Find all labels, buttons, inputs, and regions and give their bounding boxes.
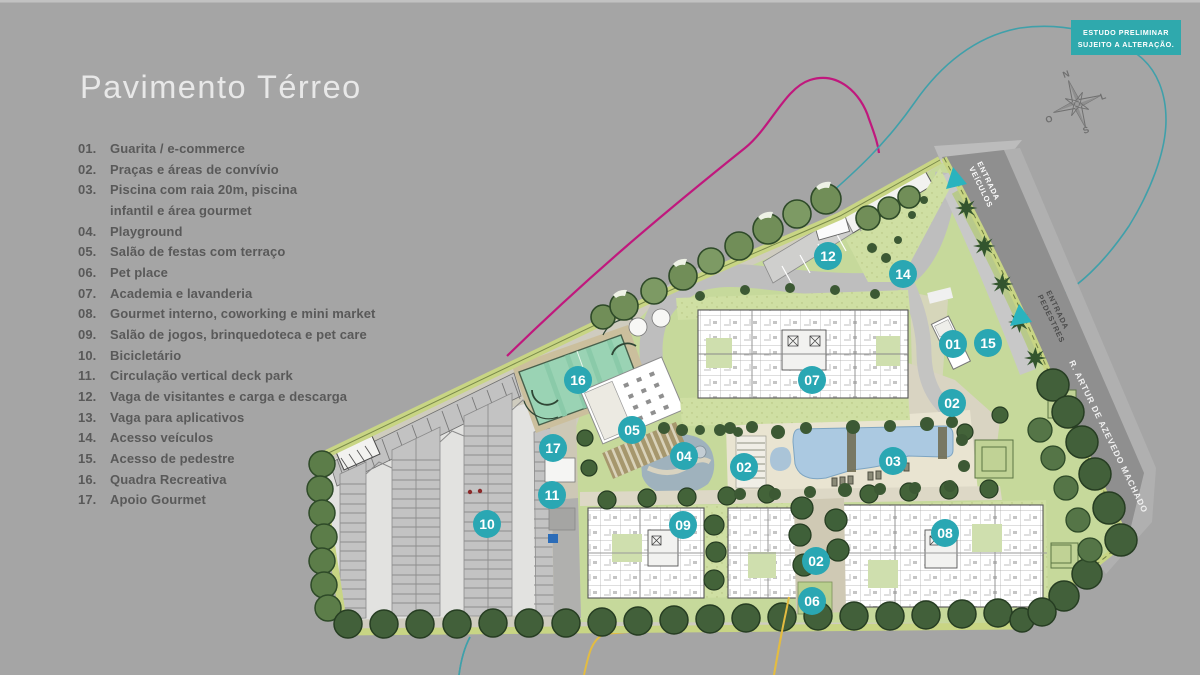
svg-text:01: 01 — [945, 336, 961, 352]
svg-text:02: 02 — [736, 459, 752, 475]
svg-text:12: 12 — [820, 248, 836, 264]
svg-text:09: 09 — [675, 517, 691, 533]
svg-text:02: 02 — [944, 395, 960, 411]
svg-text:10: 10 — [479, 516, 495, 532]
svg-text:15: 15 — [980, 335, 996, 351]
svg-text:08: 08 — [937, 525, 953, 541]
svg-text:05: 05 — [624, 422, 640, 438]
svg-text:16: 16 — [570, 372, 586, 388]
svg-text:06: 06 — [804, 593, 820, 609]
svg-text:11: 11 — [545, 487, 560, 503]
svg-text:17: 17 — [545, 440, 561, 456]
svg-text:14: 14 — [895, 266, 911, 282]
svg-text:04: 04 — [676, 448, 692, 464]
svg-text:07: 07 — [804, 372, 820, 388]
svg-text:03: 03 — [885, 453, 901, 469]
svg-text:02: 02 — [808, 553, 824, 569]
